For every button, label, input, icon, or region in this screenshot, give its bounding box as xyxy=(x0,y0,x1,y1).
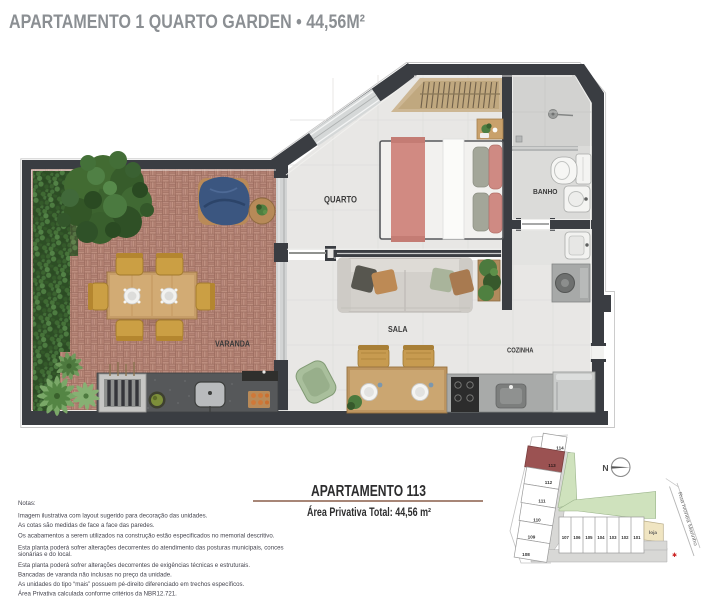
svg-text:111: 111 xyxy=(538,499,546,504)
svg-text:APARTAMENTO 1 QUARTO GARDEN •: APARTAMENTO 1 QUARTO GARDEN • 44,56M² xyxy=(9,12,365,33)
svg-text:Notas:: Notas: xyxy=(18,500,36,507)
svg-text:107: 107 xyxy=(562,535,570,540)
svg-text:SALA: SALA xyxy=(388,325,408,334)
svg-text:110: 110 xyxy=(533,518,541,523)
svg-text:113: 113 xyxy=(548,463,556,468)
svg-text:108: 108 xyxy=(522,552,530,557)
svg-text:Esta planta poderá sofrer alte: Esta planta poderá sofrer alterações dec… xyxy=(18,562,250,569)
svg-text:Os acabamentos a serem utiliza: Os acabamentos a serem utilizados na con… xyxy=(18,533,275,540)
svg-text:VARANDA: VARANDA xyxy=(215,340,250,349)
svg-text:106: 106 xyxy=(573,535,581,540)
svg-text:101: 101 xyxy=(633,535,641,540)
svg-text:sionárias e do local.: sionárias e do local. xyxy=(18,551,72,558)
svg-text:102: 102 xyxy=(621,535,629,540)
svg-text:Área Privativa Total: 44,56 m²: Área Privativa Total: 44,56 m² xyxy=(307,506,431,519)
svg-text:105: 105 xyxy=(585,535,593,540)
svg-text:109: 109 xyxy=(528,535,536,540)
svg-text:Bancadas de varanda não inclus: Bancadas de varanda não inclusas no preç… xyxy=(18,572,172,579)
svg-text:103: 103 xyxy=(609,535,617,540)
svg-text:114: 114 xyxy=(556,446,564,451)
svg-text:✱: ✱ xyxy=(672,552,677,559)
svg-text:COZINHA: COZINHA xyxy=(507,346,534,355)
svg-text:N: N xyxy=(602,463,608,473)
svg-text:As cotas são medidas de face a: As cotas são medidas de face a face das … xyxy=(18,522,155,529)
svg-text:BANHO: BANHO xyxy=(533,187,558,196)
svg-text:Imagem ilustrativa com layout: Imagem ilustrativa com layout sugerido p… xyxy=(18,513,208,520)
svg-text:104: 104 xyxy=(597,535,605,540)
svg-text:As unidades do tipo “mais” pos: As unidades do tipo “mais” possuem pé-di… xyxy=(18,581,245,588)
svg-text:Área Privativa calculada confo: Área Privativa calculada conforme critér… xyxy=(18,591,177,598)
svg-text:112: 112 xyxy=(545,480,553,485)
svg-text:QUARTO: QUARTO xyxy=(324,195,357,205)
svg-text:APARTAMENTO 113: APARTAMENTO 113 xyxy=(311,483,426,500)
svg-text:loja: loja xyxy=(649,530,657,535)
